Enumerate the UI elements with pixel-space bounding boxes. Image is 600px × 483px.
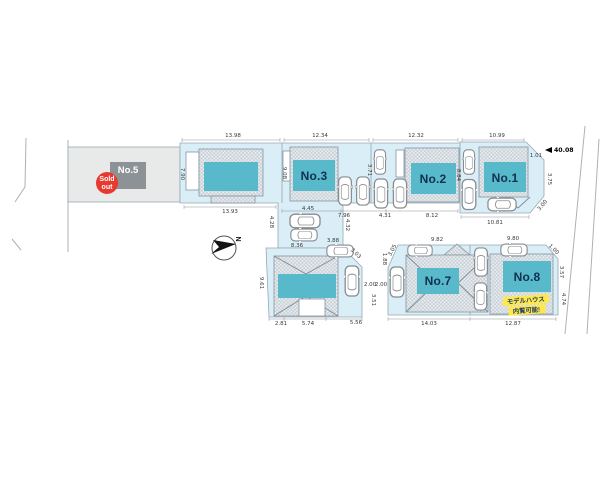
dimension-label: 2.81	[275, 321, 287, 327]
dimension-label: 3.71	[366, 164, 372, 176]
car-icon	[290, 213, 320, 230]
dimension-label: 7.90	[179, 168, 185, 181]
car-icon	[355, 177, 371, 205]
dimension-label: 9.61	[258, 277, 264, 289]
dimension-arrow-icon	[545, 147, 552, 153]
car-icon	[488, 197, 516, 213]
car-icon	[473, 283, 488, 310]
dimension-label: 10.81	[487, 220, 503, 226]
car-icon	[373, 179, 389, 208]
building-slab	[204, 162, 258, 191]
dimension-label: 5.56	[350, 320, 363, 326]
sold-out-text-line1: Sold	[99, 176, 114, 183]
north-label: N	[234, 236, 241, 241]
car-icon	[501, 243, 527, 258]
lot-no5-label: No.5	[118, 165, 139, 176]
lot-no8-label: No.8	[514, 270, 541, 284]
dimension-label: 13.98	[225, 133, 241, 139]
dimension-label: 9.80	[507, 236, 520, 242]
lot-no2-label: No.2	[420, 172, 447, 186]
dimension-label: 4.31	[379, 213, 391, 219]
sold-out-badge: Sold out	[96, 172, 118, 194]
dimension-label: 8.84	[455, 169, 461, 182]
dimension-line	[388, 317, 556, 321]
dimension-label: 8.12	[426, 213, 438, 219]
dimension-label: 3.51	[370, 294, 376, 306]
dimension-label: 14.03	[421, 321, 437, 327]
north-arrow: N	[211, 236, 241, 260]
dimension-label: 10.99	[489, 133, 505, 139]
car-icon	[389, 267, 406, 297]
road-edge-right-inner	[565, 126, 585, 334]
dimension-label: 12.34	[312, 133, 328, 139]
dimension-label: 4.74	[560, 293, 566, 306]
dimension-label: 1.01	[530, 153, 542, 159]
dimension-label: 3.57	[558, 266, 564, 279]
sold-out-text-line2: out	[102, 184, 114, 191]
dimension-label: 9.82	[431, 237, 443, 243]
dimension-label: 4.32	[344, 219, 350, 231]
garage-outline	[396, 150, 404, 177]
dimension-label: 13.93	[222, 209, 238, 215]
lot-no3-label: No.3	[301, 169, 328, 183]
car-icon	[344, 266, 361, 296]
garage-outline	[186, 152, 199, 190]
dimension-label: 4.28	[268, 216, 274, 229]
dimension-label: 8.36	[291, 243, 304, 249]
car-icon	[461, 180, 478, 210]
road-edge-right-outer	[587, 139, 599, 334]
car-icon	[408, 244, 432, 257]
dimension-label: 12.87	[505, 321, 521, 327]
car-icon	[462, 150, 475, 174]
car-icon	[373, 150, 386, 174]
lot-no7-label: No.7	[425, 274, 452, 288]
dimension-label: 5.74	[302, 321, 315, 327]
car-icon	[291, 228, 317, 243]
dimension-label: 4.45	[302, 206, 315, 212]
road-edge-left	[15, 138, 26, 202]
dimension-label: 12.32	[408, 133, 424, 139]
car-icon	[392, 179, 408, 208]
dimension-label: 2.00	[375, 282, 388, 288]
dimension-label: 3.75	[546, 173, 552, 186]
car-icon	[337, 177, 353, 205]
site-plan: No.3 No.2 No.1 No.7 No.8 No.5 Sold out	[0, 0, 600, 483]
road-edge-left-lower	[12, 239, 21, 250]
dimension-label: 3.88	[327, 238, 340, 244]
garage-outline	[299, 299, 325, 316]
dimension-line	[461, 215, 529, 219]
dimension-label: 9.08	[281, 167, 287, 180]
building-slab	[278, 274, 336, 298]
house-footprint	[211, 196, 255, 203]
car-icon	[473, 248, 489, 276]
dimension-label: 40.08	[554, 147, 574, 154]
lot-no1-label: No.1	[492, 171, 519, 185]
